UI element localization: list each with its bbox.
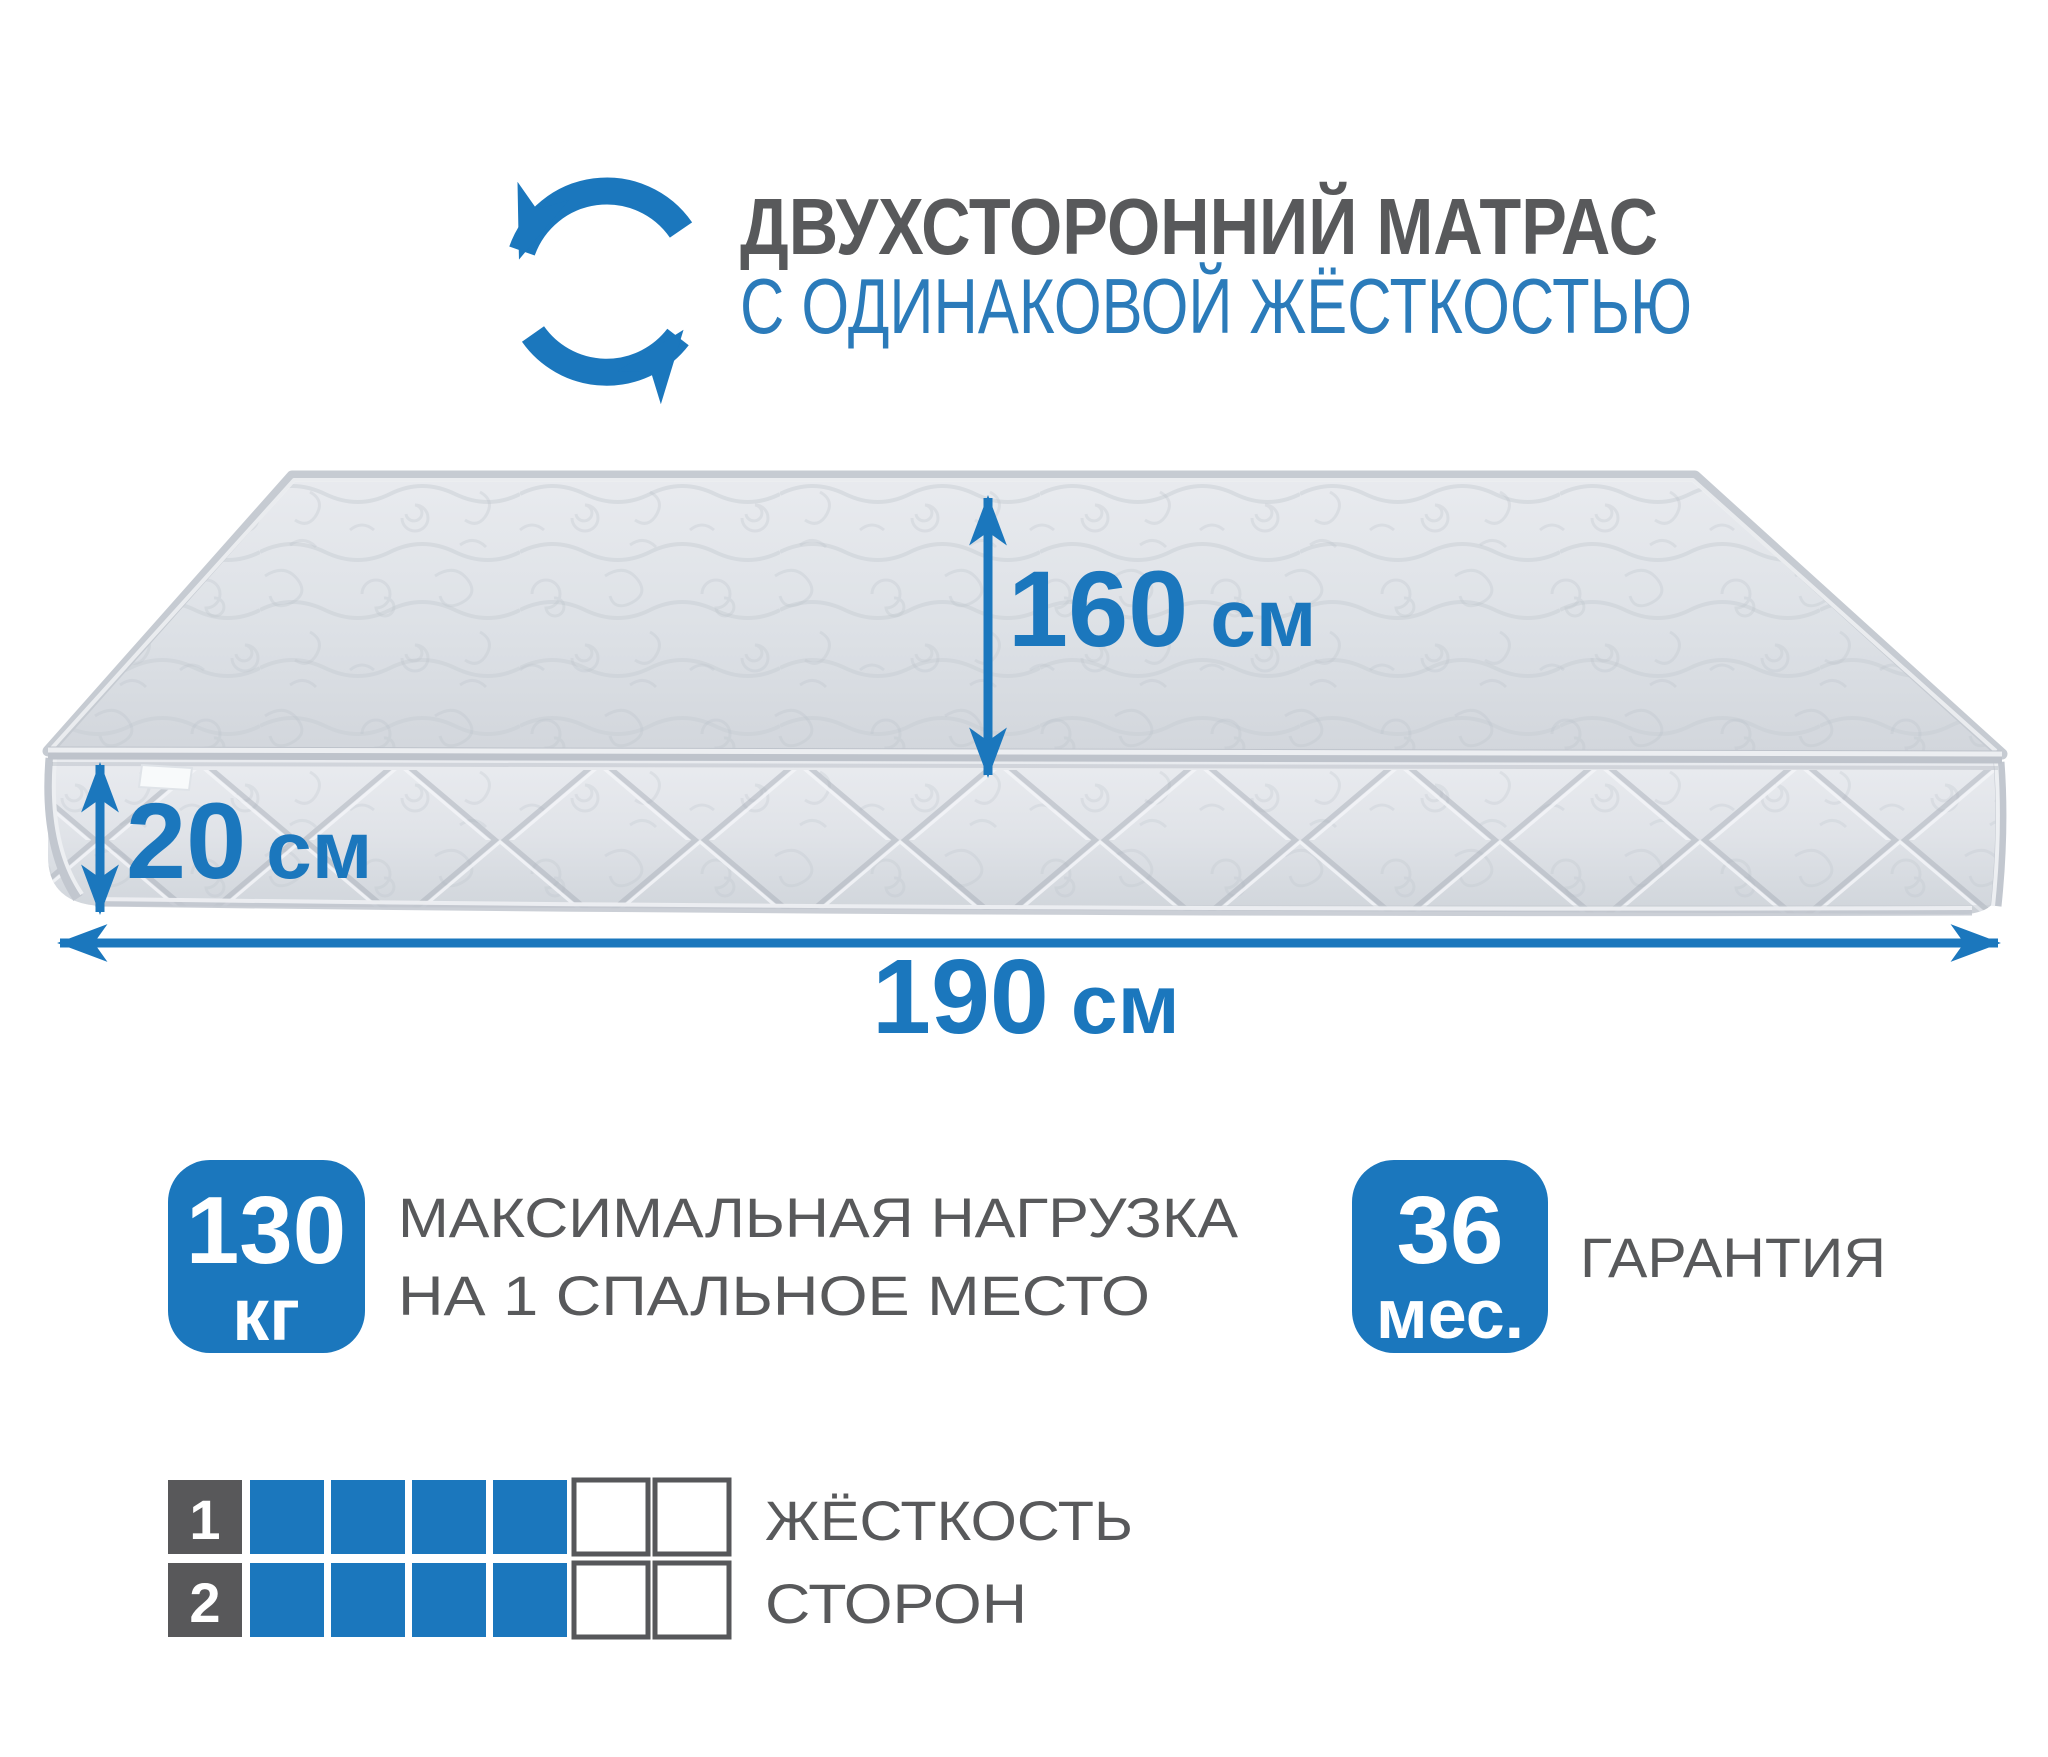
max-load-feature: 130 кг МАКСИМАЛЬНАЯ НАГРУЗКА НА 1 СПАЛЬН… bbox=[168, 1160, 1239, 1356]
hardness-square bbox=[250, 1563, 324, 1637]
max-load-label-line2: НА 1 СПАЛЬНОЕ МЕСТО bbox=[398, 1264, 1150, 1327]
max-load-label-line1: МАКСИМАЛЬНАЯ НАГРУЗКА bbox=[398, 1186, 1239, 1249]
warranty-label: ГАРАНТИЯ bbox=[1580, 1226, 1886, 1289]
infographic-canvas: 160см 20см 190см ДВУХСТОРОННИЙ МАТРАС С … bbox=[0, 0, 2048, 1757]
max-load-value: 130 bbox=[186, 1177, 346, 1284]
title-line1: ДВУХСТОРОННИЙ МАТРАС bbox=[740, 181, 1658, 271]
warranty-feature: 36 мес. ГАРАНТИЯ bbox=[1352, 1160, 1886, 1353]
length-dimension-label: 190см bbox=[872, 938, 1180, 1056]
hardness-square bbox=[493, 1480, 567, 1554]
hardness-square bbox=[655, 1563, 729, 1637]
hardness-square bbox=[412, 1480, 486, 1554]
hardness-label-line1: ЖЁСТКОСТЬ bbox=[765, 1489, 1133, 1552]
hardness-square bbox=[331, 1563, 405, 1637]
title-line2: С ОДИНАКОВОЙ ЖЁСТКОСТЬЮ bbox=[740, 262, 1692, 350]
hardness-label-line2: СТОРОН bbox=[765, 1572, 1027, 1635]
header: ДВУХСТОРОННИЙ МАТРАС С ОДИНАКОВОЙ ЖЁСТКО… bbox=[522, 181, 1692, 372]
warranty-unit: мес. bbox=[1376, 1275, 1524, 1353]
hardness-square bbox=[655, 1480, 729, 1554]
hardness-square bbox=[331, 1480, 405, 1554]
hardness-square bbox=[574, 1480, 648, 1554]
max-load-unit: кг bbox=[232, 1273, 300, 1356]
hardness-square bbox=[574, 1563, 648, 1637]
rotate-arrows-icon bbox=[522, 191, 681, 372]
hardness-row1-index: 1 bbox=[189, 1488, 220, 1551]
hardness-row2-index: 2 bbox=[189, 1571, 220, 1634]
hardness-squares bbox=[250, 1480, 729, 1637]
hardness-square bbox=[250, 1480, 324, 1554]
hardness-square bbox=[412, 1563, 486, 1637]
warranty-value: 36 bbox=[1397, 1177, 1504, 1284]
hardness-scale: 1 2 ЖЁСТКОСТЬ СТОРОН bbox=[168, 1480, 1133, 1637]
mattress-infographic: 160см 20см 190см ДВУХСТОРОННИЙ МАТРАС С … bbox=[0, 0, 2048, 1757]
hardness-square bbox=[493, 1563, 567, 1637]
